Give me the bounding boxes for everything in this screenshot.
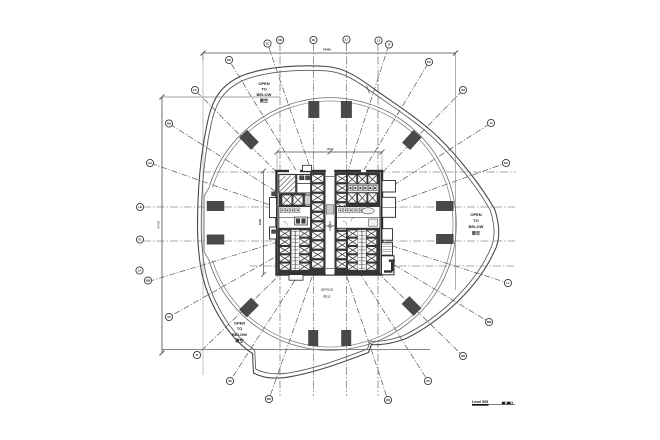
svg-text:TO: TO bbox=[237, 326, 242, 331]
svg-text:MM: MM bbox=[487, 320, 492, 324]
svg-text:78400: 78400 bbox=[323, 47, 331, 51]
svg-text:AX: AX bbox=[167, 315, 171, 319]
svg-text:NN: NN bbox=[461, 354, 465, 358]
svg-text:TT: TT bbox=[195, 353, 199, 357]
svg-text:EL: EL bbox=[138, 238, 142, 242]
svg-text:RR: RR bbox=[267, 397, 271, 401]
svg-text:BELOW: BELOW bbox=[232, 332, 247, 337]
svg-text:敞空: 敞空 bbox=[260, 97, 268, 103]
svg-text:KB: KB bbox=[278, 38, 282, 42]
svg-text:LL: LL bbox=[506, 281, 510, 285]
svg-text:1C: 1C bbox=[266, 42, 269, 46]
svg-text:办公: 办公 bbox=[323, 294, 331, 299]
svg-text:KK: KK bbox=[504, 161, 508, 165]
svg-text:BELOW: BELOW bbox=[469, 224, 484, 229]
svg-text:GG: GG bbox=[427, 60, 431, 64]
svg-text:敞空: 敞空 bbox=[472, 230, 480, 236]
svg-text:OFFICE: OFFICE bbox=[321, 288, 334, 292]
svg-text:TO: TO bbox=[261, 87, 266, 92]
svg-text:SS: SS bbox=[228, 379, 232, 383]
svg-text:BW: BW bbox=[146, 279, 151, 283]
svg-text:BB: BB bbox=[167, 122, 171, 126]
svg-text:TO: TO bbox=[473, 218, 478, 223]
svg-text:DD: DD bbox=[227, 58, 231, 62]
svg-text:1B: 1B bbox=[312, 38, 315, 42]
svg-text:LA: LA bbox=[138, 269, 142, 273]
svg-text:1F: 1F bbox=[387, 43, 390, 47]
svg-text:敞空: 敞空 bbox=[236, 337, 244, 343]
svg-text:PP: PP bbox=[426, 379, 430, 383]
svg-text:QQ: QQ bbox=[386, 398, 390, 402]
svg-text:1.2: 1.2 bbox=[377, 39, 381, 43]
svg-text:BELOW: BELOW bbox=[257, 92, 272, 97]
svg-text:OPEN: OPEN bbox=[470, 212, 481, 217]
svg-text:OPEN: OPEN bbox=[258, 81, 269, 86]
svg-text:78400: 78400 bbox=[157, 220, 161, 229]
svg-text:LB: LB bbox=[138, 205, 142, 209]
svg-text:2.1: 2.1 bbox=[345, 38, 349, 42]
svg-text:CC: CC bbox=[193, 88, 197, 92]
svg-text:9100: 9100 bbox=[258, 218, 262, 225]
svg-text:OPEN: OPEN bbox=[234, 321, 245, 326]
svg-text:JJ: JJ bbox=[490, 121, 493, 125]
svg-text:Level 505: Level 505 bbox=[472, 400, 488, 404]
svg-text:HH: HH bbox=[461, 88, 465, 92]
svg-text:48800: 48800 bbox=[326, 147, 334, 151]
svg-text:AA: AA bbox=[148, 161, 152, 165]
